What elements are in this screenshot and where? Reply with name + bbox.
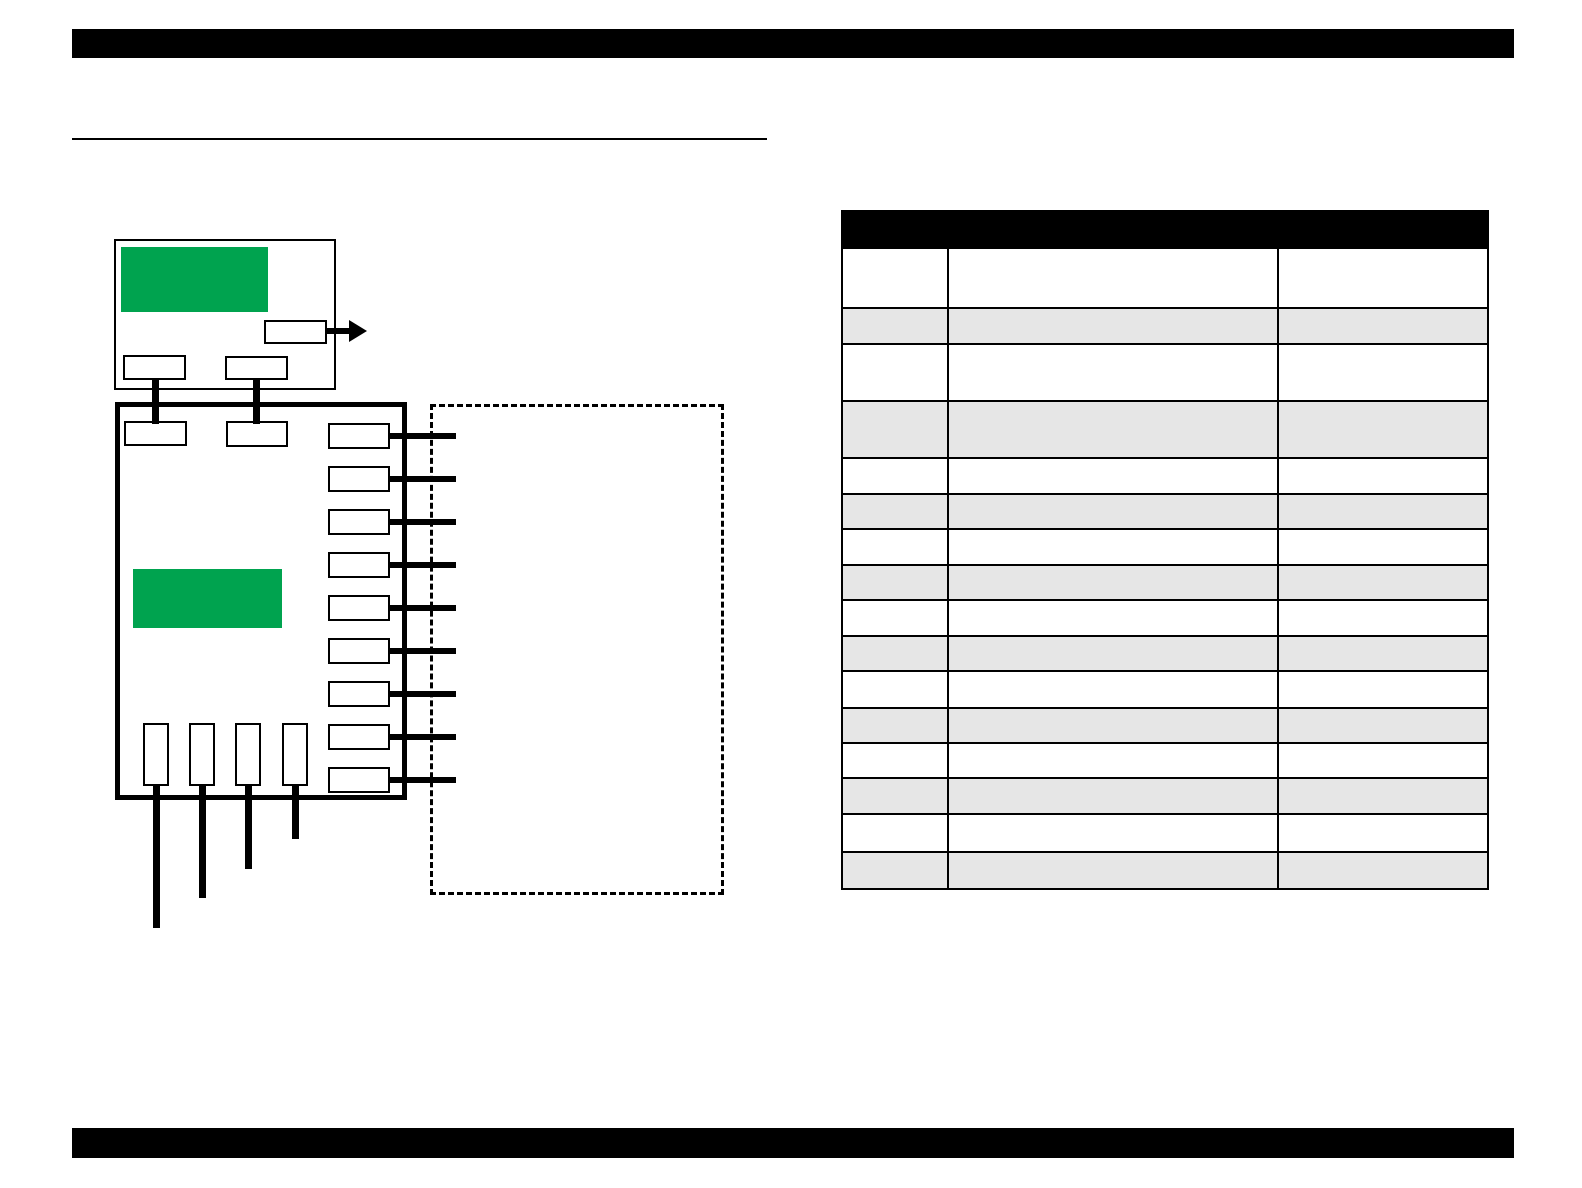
right-port-connector-line — [386, 605, 456, 611]
table-cell — [1279, 345, 1487, 400]
table-row — [843, 307, 1487, 343]
table-cell — [843, 530, 949, 564]
table-cell — [843, 637, 949, 670]
table-cell — [949, 815, 1279, 851]
table-row — [843, 851, 1487, 888]
table-cell — [1279, 709, 1487, 742]
table-row — [843, 343, 1487, 400]
table-cell — [1279, 459, 1487, 493]
table-cell — [949, 530, 1279, 564]
footer-bar — [72, 1128, 1514, 1158]
output-arrowhead-icon — [349, 320, 367, 342]
table-row — [843, 670, 1487, 707]
data-table — [841, 210, 1489, 890]
upper-green-panel — [121, 247, 268, 312]
bottom-port-connector-line — [245, 783, 252, 869]
table-body — [843, 249, 1487, 888]
right-port-box — [328, 423, 390, 449]
table-cell — [843, 309, 949, 343]
table-cell — [1279, 309, 1487, 343]
table-row — [843, 599, 1487, 635]
table-cell — [949, 459, 1279, 493]
table-cell — [949, 402, 1279, 457]
right-port-box — [328, 638, 390, 664]
output-arrow-line — [326, 328, 350, 334]
right-port-box — [328, 681, 390, 707]
dashed-region-box — [430, 404, 724, 895]
table-cell — [1279, 530, 1487, 564]
right-port-connector-line — [386, 433, 456, 439]
table-row — [843, 457, 1487, 493]
table-cell — [949, 672, 1279, 707]
table-row — [843, 528, 1487, 564]
right-port-box — [328, 724, 390, 750]
right-port-box — [328, 552, 390, 578]
right-port-connector-line — [386, 519, 456, 525]
bottom-port-box — [282, 723, 308, 786]
table-header-bar — [843, 212, 1487, 249]
table-cell — [949, 853, 1279, 888]
table-cell — [949, 637, 1279, 670]
right-port-box — [328, 595, 390, 621]
table-cell — [1279, 249, 1487, 307]
table-cell — [843, 744, 949, 777]
table-cell — [949, 309, 1279, 343]
table-row — [843, 400, 1487, 457]
main-green-panel — [133, 569, 282, 628]
table-cell — [949, 345, 1279, 400]
right-port-box — [328, 466, 390, 492]
right-port-box — [328, 509, 390, 535]
section-title-rule — [72, 138, 767, 140]
table-cell — [843, 815, 949, 851]
table-cell — [1279, 815, 1487, 851]
table-cell — [949, 495, 1279, 528]
table-cell — [843, 853, 949, 888]
table-cell — [1279, 402, 1487, 457]
table-row — [843, 493, 1487, 528]
unit-connector-line-left — [152, 378, 159, 424]
table-cell — [949, 566, 1279, 599]
table-row — [843, 564, 1487, 599]
table-cell — [1279, 744, 1487, 777]
right-port-box — [328, 767, 390, 793]
table-row — [843, 635, 1487, 670]
main-top-port-left — [124, 421, 187, 446]
bottom-port-connector-line — [292, 783, 299, 839]
right-port-connector-line — [386, 734, 456, 740]
main-top-port-right — [226, 421, 288, 447]
right-port-connector-line — [386, 691, 456, 697]
table-row — [843, 707, 1487, 742]
table-cell — [843, 601, 949, 635]
table-cell — [843, 709, 949, 742]
table-row — [843, 249, 1487, 307]
table-cell — [843, 402, 949, 457]
bottom-port-box — [143, 723, 169, 786]
table-row — [843, 813, 1487, 851]
table-cell — [949, 249, 1279, 307]
table-cell — [1279, 495, 1487, 528]
table-cell — [949, 709, 1279, 742]
header-bar — [72, 29, 1514, 58]
table-cell — [843, 672, 949, 707]
upper-output-port-box — [264, 320, 327, 344]
table-row — [843, 742, 1487, 777]
table-row — [843, 777, 1487, 813]
table-cell — [1279, 566, 1487, 599]
table-cell — [843, 249, 949, 307]
upper-bottom-port-left — [123, 355, 186, 380]
right-port-connector-line — [386, 476, 456, 482]
table-cell — [949, 779, 1279, 813]
right-port-connector-line — [386, 777, 456, 783]
table-cell — [843, 459, 949, 493]
table-cell — [1279, 672, 1487, 707]
table-cell — [1279, 601, 1487, 635]
table-cell — [949, 744, 1279, 777]
table-cell — [843, 566, 949, 599]
bottom-port-box — [235, 723, 261, 786]
bottom-port-connector-line — [153, 783, 160, 928]
table-cell — [1279, 637, 1487, 670]
table-cell — [843, 345, 949, 400]
table-cell — [843, 495, 949, 528]
table-cell — [949, 601, 1279, 635]
upper-bottom-port-right — [225, 356, 288, 380]
manual-page — [0, 0, 1582, 1188]
table-cell — [843, 779, 949, 813]
bottom-port-connector-line — [199, 783, 206, 898]
table-cell — [1279, 779, 1487, 813]
right-port-connector-line — [386, 562, 456, 568]
unit-connector-line-right — [253, 378, 260, 424]
table-cell — [1279, 853, 1487, 888]
bottom-port-box — [189, 723, 215, 786]
right-port-connector-line — [386, 648, 456, 654]
